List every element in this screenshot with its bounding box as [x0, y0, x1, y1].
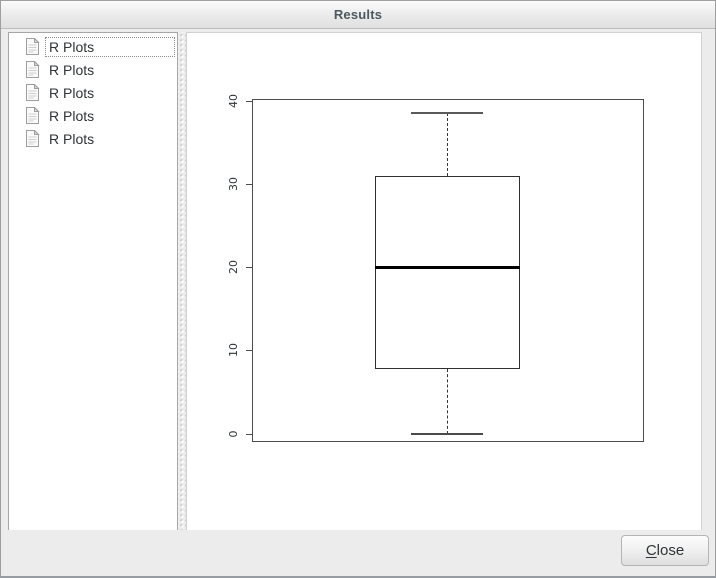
list-item-label: R Plots	[46, 84, 174, 102]
y-axis-tick-label: 40	[226, 81, 242, 121]
y-axis-tick-label: 20	[226, 247, 242, 287]
list-item-label: R Plots	[46, 130, 174, 148]
titlebar: Results	[1, 1, 715, 29]
y-axis-tick	[246, 101, 252, 102]
y-axis-tick	[246, 434, 252, 435]
results-dialog: Results R Plots R Plots	[0, 0, 716, 578]
boxplot-cap-lower	[411, 433, 483, 435]
list-item[interactable]: R Plots	[9, 58, 177, 81]
y-axis-tick	[246, 184, 252, 185]
close-button-label: Close	[646, 542, 684, 559]
y-axis-tick	[246, 350, 252, 351]
results-list-panel: R Plots R Plots R Plots	[8, 32, 178, 532]
boxplot-box	[375, 176, 520, 370]
y-axis-tick	[246, 267, 252, 268]
list-item-label: R Plots	[46, 61, 174, 79]
close-rest: lose	[657, 542, 685, 559]
plot-area: 010203040	[186, 32, 702, 532]
boxplot-whisker-upper	[447, 113, 448, 175]
boxplot-median	[375, 266, 520, 269]
close-mnemonic: C	[646, 542, 657, 559]
plots-list: R Plots R Plots R Plots	[9, 35, 177, 150]
document-icon	[25, 61, 40, 78]
y-axis-tick-label: 10	[226, 330, 242, 370]
close-button[interactable]: Close	[621, 535, 709, 566]
splitter-handle[interactable]	[178, 32, 186, 532]
list-item[interactable]: R Plots	[9, 104, 177, 127]
list-item-label: R Plots	[46, 107, 174, 125]
y-axis-tick-label: 30	[226, 164, 242, 204]
list-item[interactable]: R Plots	[9, 81, 177, 104]
list-item[interactable]: R Plots	[9, 127, 177, 150]
list-item[interactable]: R Plots	[9, 35, 177, 58]
document-icon	[25, 38, 40, 55]
list-item-label: R Plots	[46, 38, 174, 56]
document-icon	[25, 84, 40, 101]
boxplot-whisker-lower	[447, 369, 448, 434]
document-icon	[25, 130, 40, 147]
window-title: Results	[334, 7, 382, 22]
boxplot-cap-upper	[411, 112, 483, 114]
document-icon	[25, 107, 40, 124]
footer: Close	[1, 530, 715, 576]
y-axis-tick-label: 0	[226, 414, 242, 454]
